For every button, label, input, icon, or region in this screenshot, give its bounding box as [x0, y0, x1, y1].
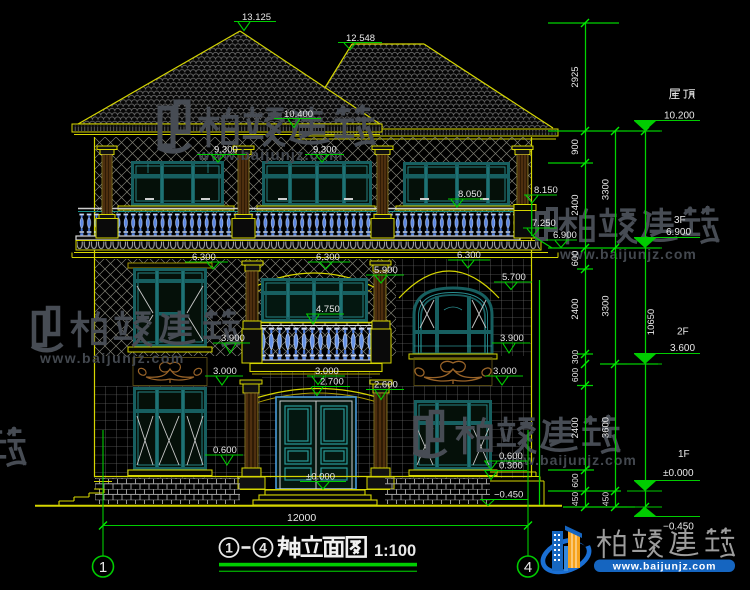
svg-text:6.900: 6.900 — [553, 230, 577, 241]
svg-text:2F: 2F — [677, 327, 689, 338]
svg-text:±0.000: ±0.000 — [663, 468, 694, 479]
svg-text:0.300: 0.300 — [499, 461, 523, 472]
svg-text:−0.450: −0.450 — [663, 522, 694, 533]
svg-text:6.300: 6.300 — [457, 250, 481, 261]
svg-text:600: 600 — [570, 368, 580, 382]
svg-text:6.300: 6.300 — [316, 252, 340, 263]
svg-text:3300: 3300 — [601, 295, 612, 316]
svg-text:450: 450 — [570, 492, 580, 506]
svg-text:3.900: 3.900 — [500, 333, 524, 344]
svg-text:900: 900 — [570, 139, 581, 155]
svg-text:7.250: 7.250 — [532, 218, 556, 229]
svg-text:6.300: 6.300 — [192, 252, 216, 263]
svg-text:2.600: 2.600 — [374, 380, 398, 391]
svg-text:2400: 2400 — [570, 194, 581, 215]
svg-text:1: 1 — [225, 540, 233, 556]
svg-text:1: 1 — [99, 559, 107, 576]
svg-text:3300: 3300 — [601, 179, 612, 200]
svg-text:10.400: 10.400 — [284, 109, 313, 120]
svg-text:3F: 3F — [674, 215, 686, 226]
svg-text:10.200: 10.200 — [664, 111, 695, 122]
svg-text:3.000: 3.000 — [213, 366, 237, 377]
svg-text:10650: 10650 — [646, 309, 657, 335]
svg-text:3.000: 3.000 — [493, 366, 517, 377]
svg-text:2.700: 2.700 — [320, 377, 344, 388]
svg-text:3.600: 3.600 — [670, 343, 695, 354]
svg-text:3600: 3600 — [601, 417, 612, 438]
svg-text:12.548: 12.548 — [346, 33, 375, 44]
svg-text:300: 300 — [570, 350, 580, 364]
svg-text:2400: 2400 — [570, 417, 581, 438]
svg-text:4: 4 — [259, 540, 267, 556]
svg-text:www.baijunjz.com: www.baijunjz.com — [39, 350, 185, 366]
svg-text:1F: 1F — [678, 449, 690, 460]
svg-text:9.300: 9.300 — [313, 145, 337, 156]
svg-text:0.600: 0.600 — [213, 445, 237, 456]
svg-text:2925: 2925 — [570, 66, 581, 87]
svg-text:4.750: 4.750 — [316, 304, 340, 315]
svg-text:8.150: 8.150 — [534, 185, 558, 196]
svg-text:600: 600 — [570, 251, 581, 267]
svg-text:3.900: 3.900 — [221, 333, 245, 344]
svg-text:600: 600 — [570, 473, 580, 487]
svg-text:3.000: 3.000 — [315, 366, 339, 377]
svg-text:1:100: 1:100 — [374, 542, 416, 560]
svg-text:±0.000: ±0.000 — [306, 472, 335, 483]
svg-text:−0.450: −0.450 — [494, 490, 523, 501]
svg-text:8.050: 8.050 — [458, 189, 482, 200]
svg-text:9.300: 9.300 — [214, 145, 238, 156]
svg-text:2400: 2400 — [570, 298, 581, 319]
svg-text:4: 4 — [524, 559, 532, 576]
svg-text:www.baijunjz.com: www.baijunjz.com — [612, 560, 716, 572]
svg-text:6.900: 6.900 — [666, 227, 691, 238]
svg-text:450: 450 — [601, 492, 611, 506]
svg-text:5.700: 5.700 — [502, 272, 526, 283]
svg-text:13.125: 13.125 — [242, 12, 271, 23]
svg-text:5.900: 5.900 — [374, 265, 398, 276]
svg-text:12000: 12000 — [287, 512, 316, 524]
